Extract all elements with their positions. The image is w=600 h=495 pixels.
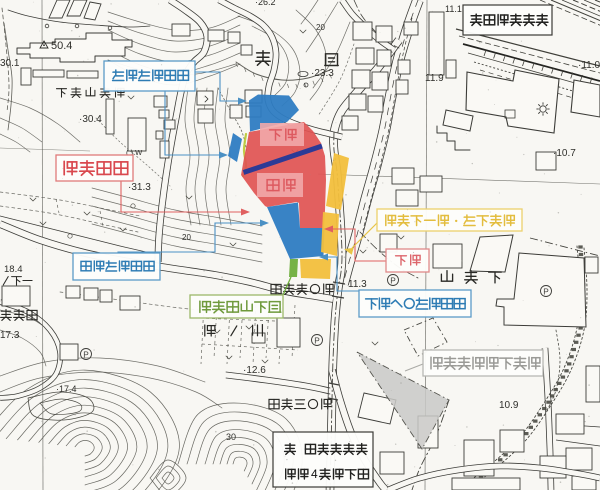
svg-text:·23.3: ·23.3 xyxy=(311,68,334,79)
svg-text:P: P xyxy=(314,337,320,346)
svg-text:·30.4: ·30.4 xyxy=(79,114,102,125)
svg-text:P: P xyxy=(390,277,396,286)
svg-text:18.4: 18.4 xyxy=(4,264,23,275)
svg-text:·31.3: ·31.3 xyxy=(128,182,151,193)
svg-text:·26.2: ·26.2 xyxy=(255,0,276,7)
svg-text:·12.6: ·12.6 xyxy=(243,365,266,376)
svg-text:11.9: 11.9 xyxy=(425,73,444,84)
svg-text:20: 20 xyxy=(316,23,325,32)
svg-text:·10.7: ·10.7 xyxy=(553,148,576,159)
svg-text:30.1: 30.1 xyxy=(0,58,20,69)
svg-text:11.3: 11.3 xyxy=(348,279,367,290)
svg-text:·17.4: ·17.4 xyxy=(56,384,77,394)
svg-text:4: 4 xyxy=(311,467,318,481)
svg-text:11.1: 11.1 xyxy=(445,4,462,14)
svg-text:20: 20 xyxy=(182,233,191,242)
svg-text:17.3: 17.3 xyxy=(0,330,20,341)
svg-text:·11.0: ·11.0 xyxy=(578,60,600,71)
svg-text:P: P xyxy=(543,288,549,297)
svg-text:P: P xyxy=(83,351,89,360)
svg-text:50.4: 50.4 xyxy=(51,40,72,52)
svg-text:10.9: 10.9 xyxy=(499,400,519,411)
svg-text:30: 30 xyxy=(226,432,236,442)
